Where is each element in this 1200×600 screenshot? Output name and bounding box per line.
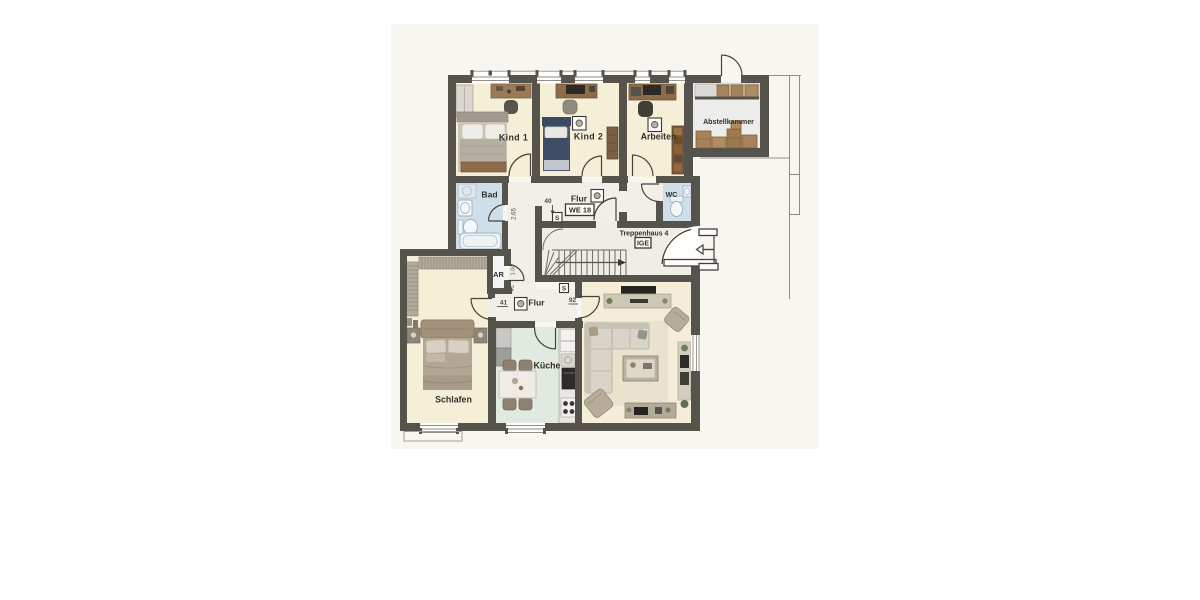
svg-text:Kind 1: Kind 1	[499, 133, 528, 143]
svg-text:WE 18: WE 18	[569, 206, 591, 215]
svg-text:Bad: Bad	[481, 190, 497, 200]
svg-text:45: 45	[510, 285, 516, 291]
svg-text:Abstellkammer: Abstellkammer	[703, 118, 754, 126]
svg-text:2.65: 2.65	[512, 208, 518, 220]
svg-text:S: S	[562, 286, 567, 293]
svg-text:Kind 2: Kind 2	[574, 132, 603, 142]
svg-text:IGE: IGE	[637, 241, 649, 248]
svg-text:Treppenhaus 4: Treppenhaus 4	[620, 231, 669, 238]
svg-text:Schlafen: Schlafen	[435, 395, 472, 405]
svg-text:92: 92	[569, 297, 577, 304]
svg-text:1.04: 1.04	[511, 265, 517, 276]
svg-text:Flur: Flur	[528, 298, 545, 308]
svg-text:Küche: Küche	[534, 361, 561, 371]
svg-text:41: 41	[500, 300, 508, 307]
svg-text:40: 40	[544, 198, 552, 205]
svg-text:Arbeiten: Arbeiten	[641, 132, 677, 142]
svg-text:S: S	[555, 215, 560, 222]
svg-text:WC: WC	[666, 192, 678, 199]
svg-text:AR: AR	[493, 270, 504, 279]
svg-text:Flur: Flur	[571, 194, 588, 204]
